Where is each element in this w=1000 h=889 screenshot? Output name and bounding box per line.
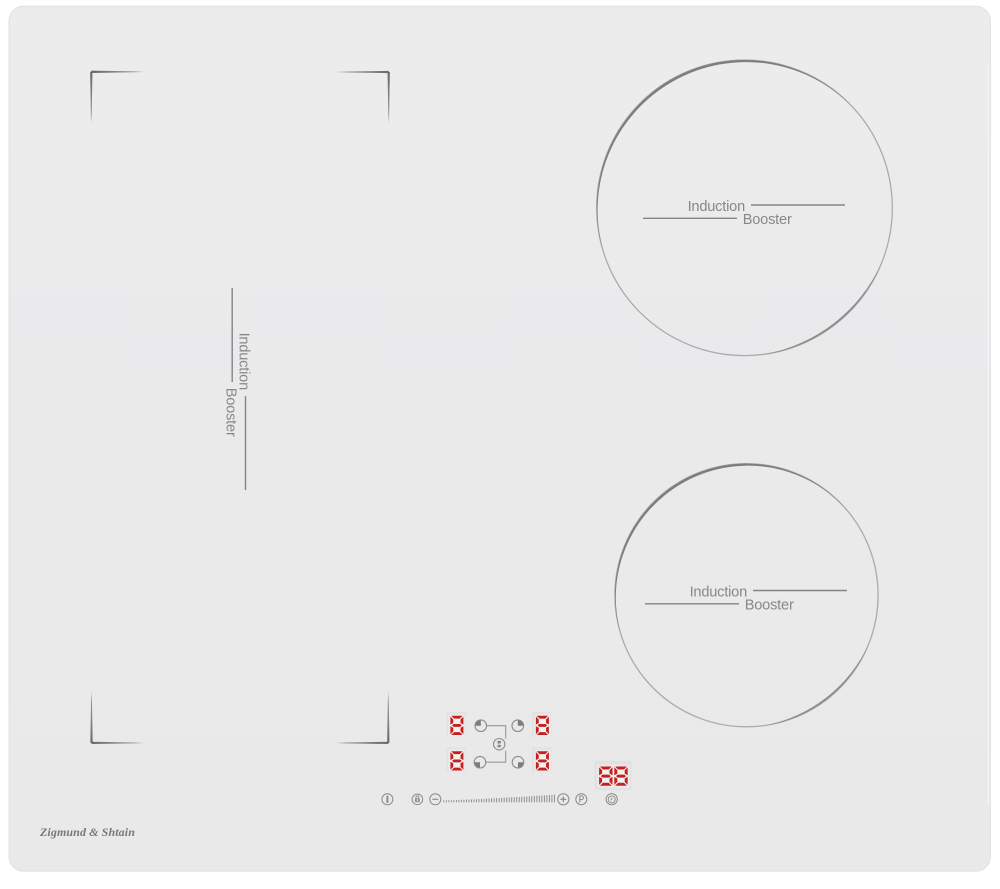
- svg-text:Induction: Induction: [236, 333, 252, 391]
- svg-text:Induction: Induction: [688, 199, 746, 215]
- svg-text:Zigmund & Shtain: Zigmund & Shtain: [39, 825, 135, 839]
- svg-text:Booster: Booster: [222, 388, 238, 437]
- svg-text:Booster: Booster: [745, 598, 794, 614]
- svg-text:Induction: Induction: [690, 585, 748, 601]
- svg-text:Booster: Booster: [743, 212, 792, 228]
